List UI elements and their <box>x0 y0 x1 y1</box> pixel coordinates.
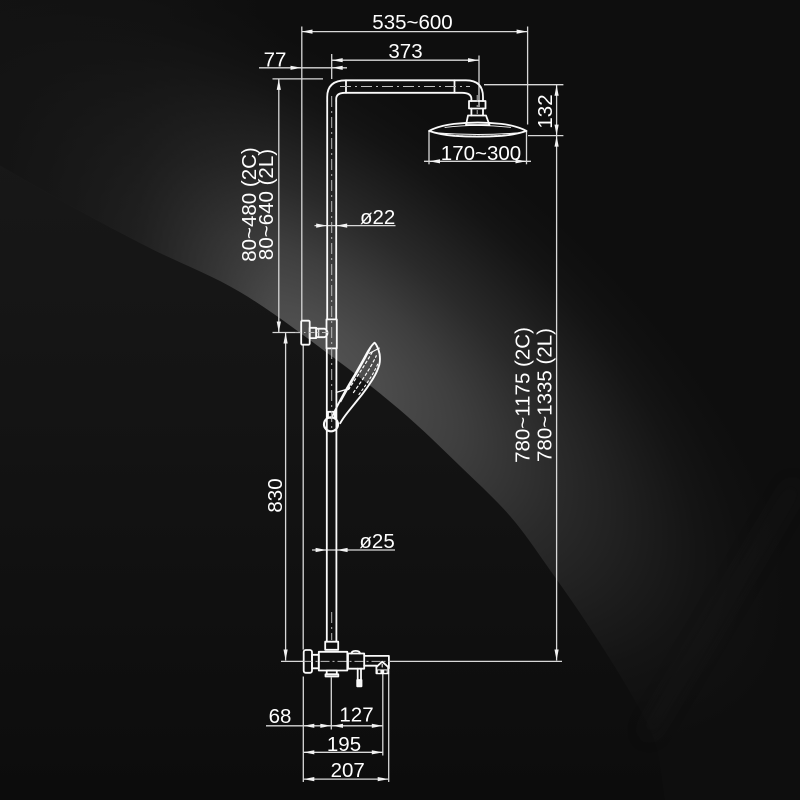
svg-text:132: 132 <box>534 94 557 128</box>
svg-text:77: 77 <box>264 48 287 71</box>
svg-text:535~600: 535~600 <box>372 11 452 34</box>
svg-text:170~300: 170~300 <box>441 142 521 165</box>
svg-text:207: 207 <box>331 759 365 782</box>
svg-text:373: 373 <box>388 40 422 63</box>
svg-text:68: 68 <box>269 705 292 728</box>
svg-text:780~1335 (2L): 780~1335 (2L) <box>534 328 557 462</box>
svg-text:127: 127 <box>339 704 373 727</box>
svg-text:80~640 (2L): 80~640 (2L) <box>255 149 278 260</box>
svg-text:780~1175 (2C): 780~1175 (2C) <box>512 327 535 463</box>
svg-text:ø25: ø25 <box>359 530 394 553</box>
svg-text:195: 195 <box>327 733 361 756</box>
svg-text:ø22: ø22 <box>360 206 395 229</box>
svg-text:830: 830 <box>264 478 287 512</box>
